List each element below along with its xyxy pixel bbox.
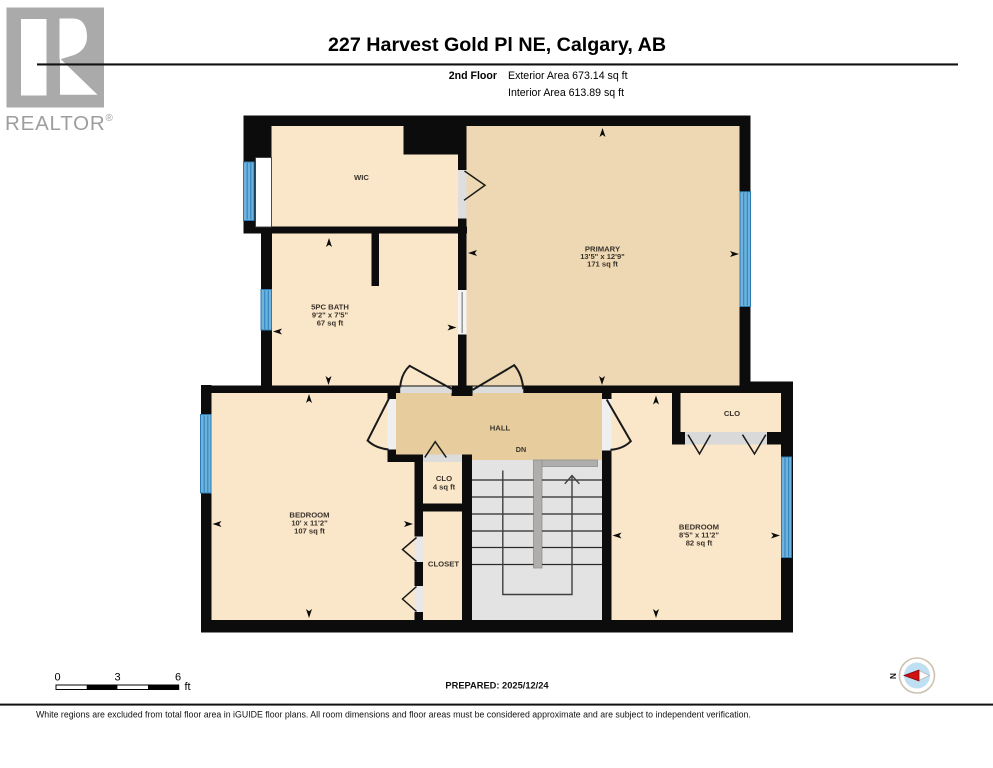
svg-text:107 sq ft: 107 sq ft — [294, 527, 325, 536]
svg-text:N: N — [888, 673, 898, 679]
svg-text:171 sq ft: 171 sq ft — [587, 260, 618, 269]
svg-text:CLO: CLO — [724, 409, 740, 418]
svg-text:White regions are excluded fro: White regions are excluded from total fl… — [36, 710, 751, 720]
svg-text:ft: ft — [185, 681, 191, 693]
svg-text:Exterior Area 673.14 sq ft: Exterior Area 673.14 sq ft — [508, 70, 628, 82]
svg-text:3: 3 — [114, 672, 120, 684]
svg-text:0: 0 — [54, 672, 60, 684]
svg-text:4 sq ft: 4 sq ft — [433, 483, 456, 492]
svg-text:Interior Area 613.89 sq ft: Interior Area 613.89 sq ft — [508, 87, 624, 99]
svg-text:DN: DN — [516, 445, 526, 454]
svg-text:HALL: HALL — [490, 424, 511, 433]
svg-text:82 sq ft: 82 sq ft — [686, 539, 713, 548]
svg-text:2nd Floor: 2nd Floor — [449, 70, 497, 82]
svg-text:6: 6 — [175, 672, 181, 684]
svg-text:REALTOR®: REALTOR® — [5, 112, 114, 135]
svg-text:WIC: WIC — [354, 173, 369, 182]
svg-text:CLOSET: CLOSET — [428, 560, 459, 569]
svg-text:PREPARED: 2025/12/24: PREPARED: 2025/12/24 — [445, 681, 549, 691]
svg-text:67 sq ft: 67 sq ft — [317, 319, 344, 328]
svg-text:227 Harvest Gold Pl NE, Calgar: 227 Harvest Gold Pl NE, Calgary, AB — [328, 34, 666, 56]
